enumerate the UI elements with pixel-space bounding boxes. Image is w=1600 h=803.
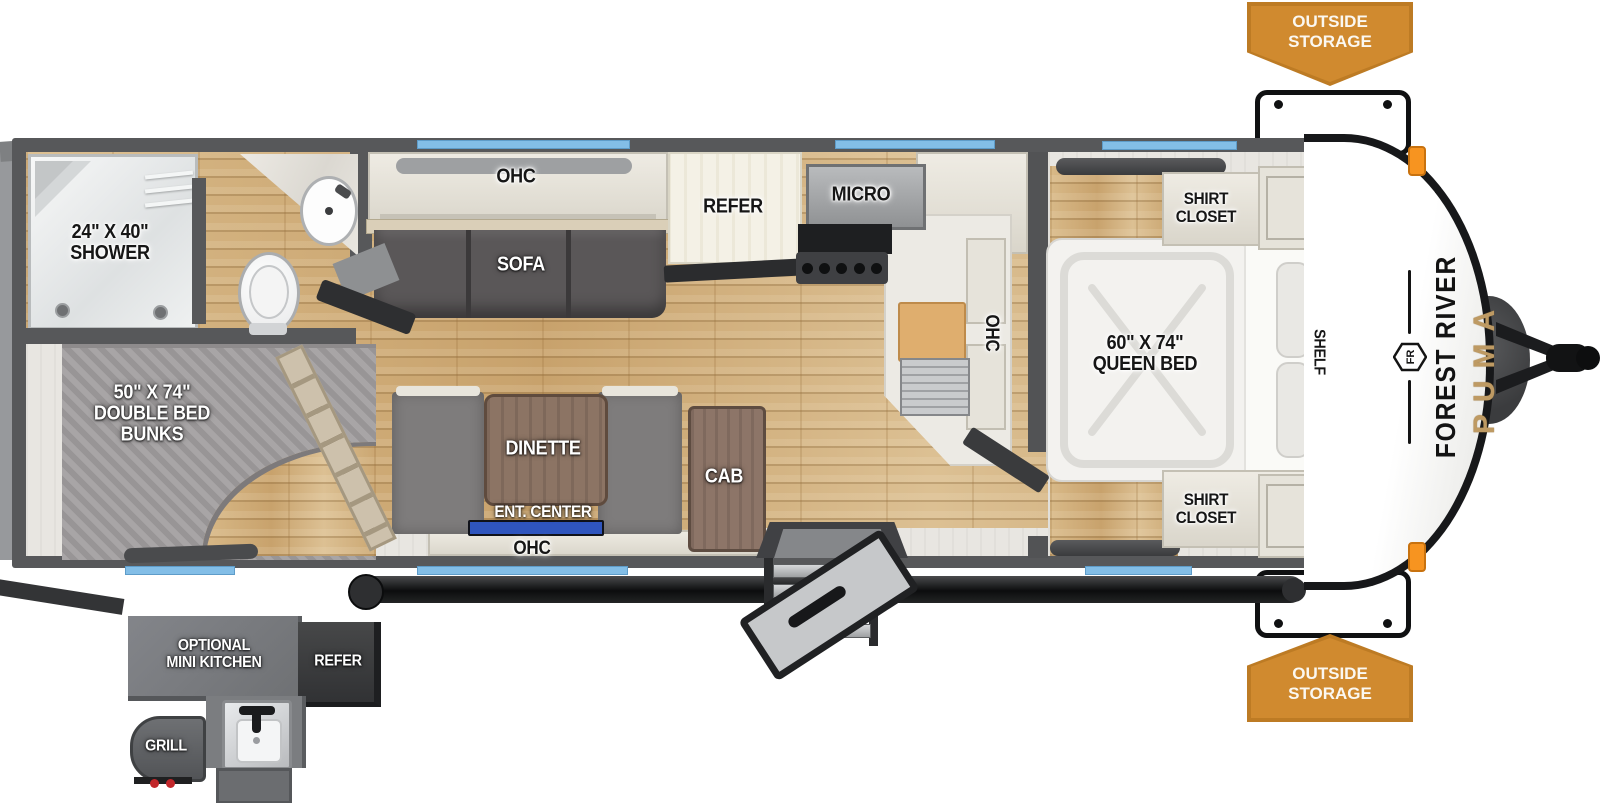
- shower-wall: [192, 178, 206, 324]
- banner-top-line1: OUTSIDE: [1251, 12, 1409, 32]
- shirt-closet-line2: CLOSET: [1176, 509, 1236, 527]
- mini-sink: [222, 700, 292, 770]
- fr-badge-icon: FR: [1393, 342, 1427, 372]
- bunks-size: 50" X 74": [94, 383, 210, 404]
- shower-label: 24" X 40" SHOWER: [70, 222, 149, 264]
- closet-door-panel: [1266, 484, 1306, 548]
- window-strip: [1085, 566, 1192, 575]
- marker-light-icon: [1408, 146, 1426, 176]
- logo-rule: [1408, 270, 1411, 334]
- shower-drain-icon: [153, 305, 168, 320]
- shower-name: SHOWER: [70, 243, 149, 264]
- bench-headrest: [602, 386, 678, 396]
- shower-door-track: [145, 199, 193, 208]
- micro-label: MICRO: [832, 185, 891, 206]
- outside-storage-banner-bottom: OUTSIDE STORAGE: [1247, 634, 1413, 722]
- banner-bottom-line2: STORAGE: [1251, 684, 1409, 704]
- bunkroom-edge-strip: [26, 344, 66, 556]
- rivet-icon: [1383, 619, 1392, 628]
- cab-label: CAB: [705, 467, 743, 488]
- puma-logo: PUMA: [1468, 266, 1504, 466]
- bed-trim-bar: [1050, 540, 1180, 556]
- burner-knob-icon: [819, 263, 830, 274]
- banner-top-face: OUTSIDE STORAGE: [1251, 6, 1409, 82]
- faucet-icon: [334, 183, 352, 200]
- logo-rule: [1408, 380, 1411, 444]
- rivet-icon: [1383, 100, 1392, 109]
- rivet-icon: [1274, 619, 1283, 628]
- forest-river-logo: FR FOREST RIVER: [1394, 207, 1460, 507]
- bathroom-bunkroom-wall: [26, 328, 356, 344]
- ohc-sofa-label: OHC: [496, 167, 535, 188]
- ohc-kitchen-label: OHC: [981, 314, 1001, 351]
- shower-drain-icon: [55, 303, 70, 318]
- tv-strip: [468, 520, 604, 536]
- bedroom-wall: [1028, 536, 1048, 558]
- outside-storage-banner-top: OUTSIDE STORAGE: [1247, 2, 1413, 86]
- shirt-closet-line1: SHIRT: [1176, 190, 1236, 208]
- cushion-divider: [466, 230, 471, 318]
- shower-size: 24" X 40": [70, 222, 149, 243]
- cushion-divider: [566, 230, 571, 318]
- bunks-label: 50" X 74" DOUBLE BED BUNKS: [94, 383, 210, 446]
- bed-name: QUEEN BED: [1093, 354, 1198, 375]
- awning-end-cap: [1282, 578, 1306, 602]
- banner-bottom-face: OUTSIDE STORAGE: [1251, 638, 1409, 718]
- entry-door-window: [786, 584, 848, 630]
- ohc-dinette-label: OHC: [513, 539, 550, 559]
- bench-headrest: [396, 386, 480, 396]
- grill-knob-icon: [166, 779, 175, 788]
- window-strip: [1102, 141, 1237, 150]
- shower-door-track: [145, 185, 193, 194]
- grill-knob-icon: [150, 779, 159, 788]
- closet-door-panel: [1266, 176, 1306, 240]
- window-strip: [417, 566, 628, 575]
- refer-label: REFER: [703, 197, 763, 218]
- rivet-icon: [1274, 100, 1283, 109]
- bunks-name1: DOUBLE BED: [94, 404, 210, 425]
- banner-top-line2: STORAGE: [1251, 32, 1409, 52]
- kitchen-sink: [900, 358, 970, 416]
- dinette-label: DINETTE: [505, 439, 580, 460]
- sink-drain-icon: [253, 737, 260, 744]
- shirt-closet-line1: SHIRT: [1176, 491, 1236, 509]
- toilet: [238, 252, 300, 334]
- grill-base: [134, 777, 192, 784]
- banner-bottom-line1: OUTSIDE: [1251, 664, 1409, 684]
- shelf-label: SHELF: [1310, 329, 1327, 375]
- bunks-name2: BUNKS: [94, 425, 210, 446]
- burner-knob-icon: [836, 263, 847, 274]
- window-strip: [125, 566, 235, 575]
- stabilizer-jack: [0, 577, 124, 615]
- shower-door-track: [145, 171, 193, 180]
- ent-center-label: ENT. CENTER: [494, 503, 591, 521]
- hitch-coupler: [1496, 316, 1600, 400]
- window-strip: [417, 140, 630, 149]
- window-strip: [835, 140, 995, 149]
- grill-label: GRILL: [145, 739, 187, 756]
- dinette-bench: [392, 392, 484, 534]
- shirt-closet-top-label: SHIRT CLOSET: [1176, 190, 1236, 226]
- burner-knob-icon: [802, 263, 813, 274]
- toilet-seat: [249, 265, 289, 319]
- bed-size: 60" X 74": [1093, 333, 1198, 354]
- range-hood: [798, 224, 892, 254]
- counter-door: [966, 344, 1006, 430]
- floorplan: OUTSIDE STORAGE OUTSIDE STORAGE: [0, 0, 1600, 803]
- burner-knob-icon: [871, 263, 882, 274]
- bedroom-wall: [1028, 152, 1048, 452]
- bathroom-sink: [300, 176, 358, 246]
- marker-light-icon: [1408, 542, 1426, 572]
- queen-bed-label: 60" X 74" QUEEN BED: [1093, 333, 1198, 375]
- dinette-bench: [598, 392, 682, 534]
- awning-end-cap: [348, 574, 384, 610]
- mini-kitchen-step: [216, 768, 292, 803]
- outside-refer-label: REFER: [314, 654, 361, 671]
- cooktop: [796, 252, 888, 284]
- shirt-closet-line2: CLOSET: [1176, 208, 1236, 226]
- counter-door: [966, 238, 1006, 324]
- sofa-label: SOFA: [497, 255, 545, 276]
- mini-kitchen-line2: MINI KITCHEN: [166, 655, 261, 672]
- overhead-cabinet-sofa: [368, 152, 668, 228]
- shirt-closet-bottom-label: SHIRT CLOSET: [1176, 491, 1236, 527]
- mini-kitchen-label: OPTIONAL MINI KITCHEN: [166, 638, 261, 672]
- cutting-board: [898, 302, 966, 362]
- mini-kitchen-line1: OPTIONAL: [166, 638, 261, 655]
- toilet-base: [249, 323, 287, 335]
- sink-drain-icon: [325, 207, 333, 215]
- fr-badge-text: FR: [1405, 350, 1417, 365]
- faucet-icon: [252, 706, 261, 733]
- burner-knob-icon: [854, 263, 865, 274]
- maker-name: FOREST RIVER: [1430, 255, 1462, 458]
